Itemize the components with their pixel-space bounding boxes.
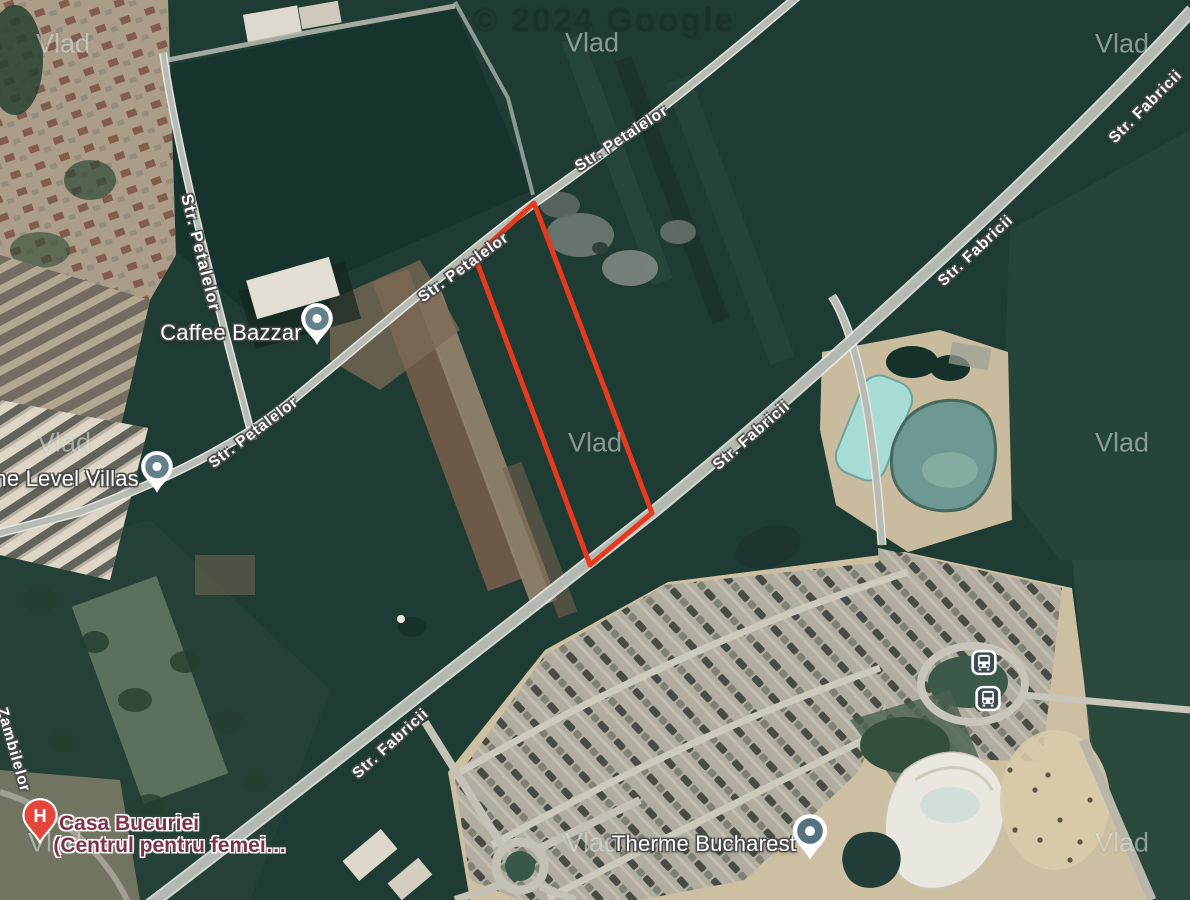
therme-bucharest-pin[interactable] xyxy=(790,813,830,866)
google-attribution: © 2024 Google xyxy=(473,2,736,41)
poi-label-casa-bucuriei-line2[interactable]: (Centrul pentru femei… xyxy=(53,834,286,858)
watermark-vlad-6: Vlad xyxy=(1095,428,1149,459)
poi-label-casa-bucuriei-line1[interactable]: Casa Bucuriei xyxy=(59,812,199,836)
poi-label-caffee-bazzar[interactable]: Caffee Bazzar xyxy=(160,320,302,346)
poi-dot-pin-icon xyxy=(790,813,830,861)
bus-icon xyxy=(975,686,1001,712)
poi-label-one-level-villas[interactable]: One Level Villas xyxy=(0,466,139,492)
watermark-vlad-3: Vlad xyxy=(1095,29,1149,60)
watermark-vlad-4: Vlad xyxy=(37,428,91,459)
bus-icon xyxy=(971,650,997,676)
bus-stop-icon-2[interactable] xyxy=(975,686,1001,717)
bus-stop-icon-1[interactable] xyxy=(971,650,997,681)
watermark-vlad-8: Vlad xyxy=(565,828,619,859)
svg-text:H: H xyxy=(33,805,46,826)
poi-dot-pin-icon xyxy=(139,450,175,494)
poi-dot-pin-icon xyxy=(299,302,335,346)
hospital-pin-icon: H xyxy=(21,798,59,844)
watermark-vlad-1: Vlad xyxy=(36,29,90,60)
poi-label-therme-bucharest[interactable]: Therme Bucharest xyxy=(612,831,796,857)
watermark-vlad-5: Vlad xyxy=(568,428,622,459)
casa-bucuriei-hospital-pin[interactable]: H xyxy=(21,798,59,849)
watermark-vlad-9: Vlad xyxy=(1095,828,1149,859)
satellite-map[interactable]: Vlad Vlad Vlad Vlad Vlad Vlad Vlad Vlad … xyxy=(0,0,1190,900)
one-level-villas-pin[interactable] xyxy=(139,450,175,499)
caffee-bazzar-pin[interactable] xyxy=(299,302,335,351)
